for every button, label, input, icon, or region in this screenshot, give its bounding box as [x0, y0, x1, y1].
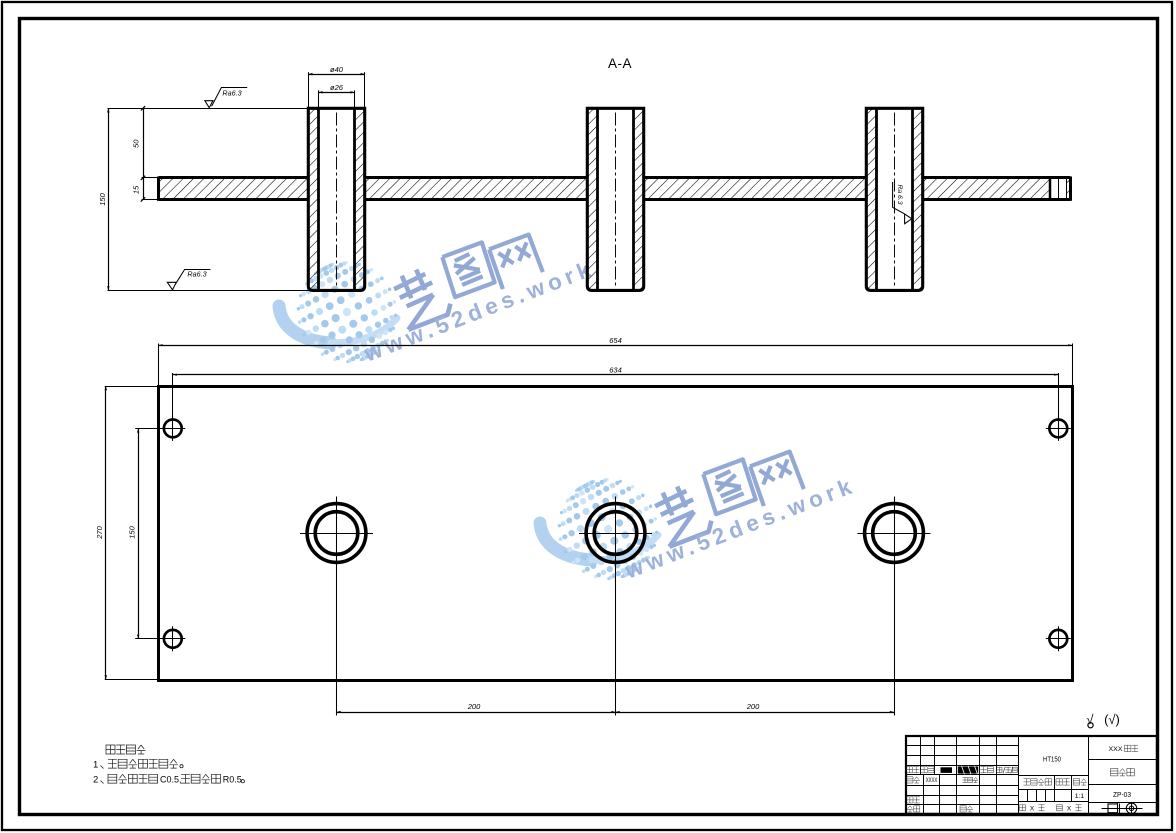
svg-text:XXX: XXX [1109, 746, 1123, 753]
svg-text:Ra 6.3: Ra 6.3 [896, 184, 903, 204]
svg-text:HT150: HT150 [1043, 755, 1061, 764]
svg-text:270: 270 [95, 525, 104, 539]
svg-text:150: 150 [98, 192, 107, 205]
svg-text:200: 200 [746, 702, 760, 711]
svg-text:(√): (√) [1104, 712, 1120, 727]
svg-text:654: 654 [609, 336, 622, 345]
svg-text:XXXX: XXXX [926, 777, 938, 784]
svg-text:1:1: 1:1 [1075, 793, 1085, 800]
svg-text:Ra6.3: Ra6.3 [222, 89, 241, 98]
svg-text:634: 634 [609, 365, 622, 374]
svg-text:X: X [1067, 806, 1072, 813]
svg-text:15: 15 [132, 185, 141, 194]
svg-text:Ra6.3: Ra6.3 [187, 270, 206, 279]
svg-text:150: 150 [128, 525, 137, 538]
svg-text:A-A: A-A [608, 56, 632, 71]
svg-text:X: X [1030, 806, 1035, 813]
svg-text:ZP-03: ZP-03 [1113, 790, 1131, 799]
svg-text:200: 200 [467, 702, 481, 711]
svg-text:1: 1 [93, 759, 98, 770]
svg-text:ø40: ø40 [330, 65, 344, 74]
svg-text:2: 2 [93, 774, 98, 785]
svg-text:R0.5: R0.5 [223, 774, 242, 784]
svg-text:ø26: ø26 [330, 83, 344, 92]
svg-text:50: 50 [132, 139, 141, 148]
svg-text:C0.5,: C0.5, [160, 774, 182, 784]
